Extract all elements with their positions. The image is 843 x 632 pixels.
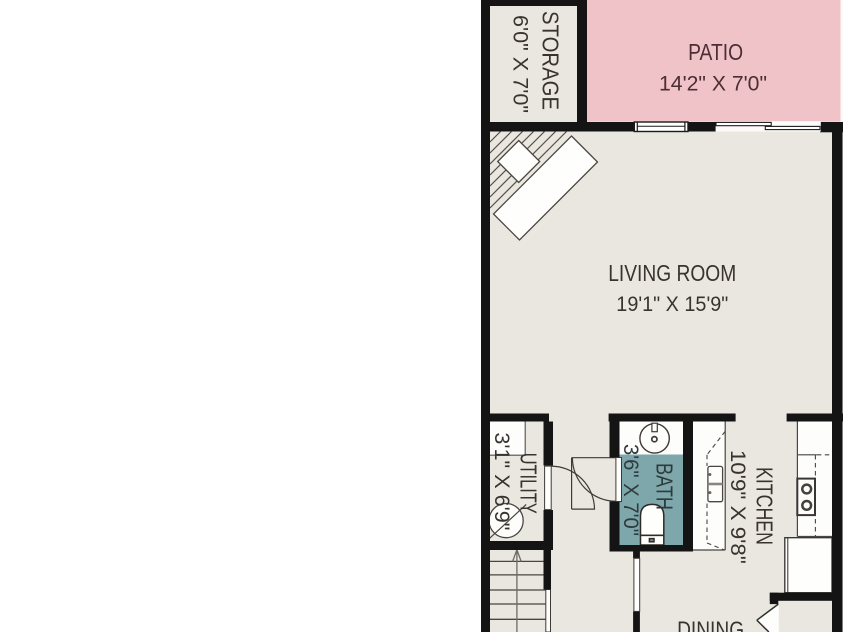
svg-text:PATIO: PATIO bbox=[688, 39, 743, 65]
svg-text:6'0" X 7'0": 6'0" X 7'0" bbox=[509, 15, 532, 113]
svg-text:UTILITY: UTILITY bbox=[516, 453, 542, 514]
svg-text:14'2" X 7'0": 14'2" X 7'0" bbox=[659, 73, 767, 96]
svg-text:19'1" X 15'9": 19'1" X 15'9" bbox=[616, 293, 728, 316]
svg-text:BATH: BATH bbox=[651, 463, 677, 510]
svg-text:DINING: DINING bbox=[677, 617, 744, 632]
svg-text:10'9" X 9'8": 10'9" X 9'8" bbox=[726, 450, 749, 564]
svg-text:STORAGE: STORAGE bbox=[537, 11, 563, 110]
svg-text:LIVING ROOM: LIVING ROOM bbox=[608, 260, 736, 286]
svg-text:KITCHEN: KITCHEN bbox=[752, 467, 778, 545]
svg-text:3'1" X 6'9": 3'1" X 6'9" bbox=[490, 432, 513, 530]
svg-text:3'6" X 7'0": 3'6" X 7'0" bbox=[619, 444, 642, 536]
